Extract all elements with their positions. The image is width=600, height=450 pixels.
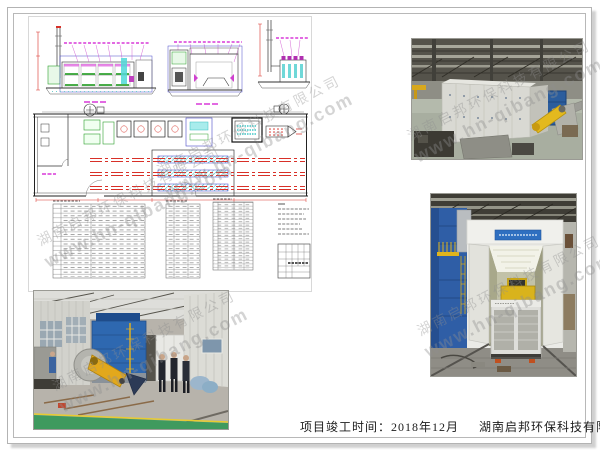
caption-completion-date: 项目竣工时间：2018年12月 bbox=[300, 420, 459, 434]
fan-symbol-right bbox=[274, 104, 289, 114]
parts-table bbox=[213, 199, 253, 270]
photo3-scene bbox=[34, 291, 228, 429]
cad-drawing bbox=[28, 16, 312, 292]
photo2-scene bbox=[431, 194, 576, 376]
elevation-view-2 bbox=[168, 42, 242, 104]
photo-spray-booth bbox=[430, 193, 577, 377]
spec-table-1 bbox=[53, 201, 145, 278]
cad-drawing-svg bbox=[28, 16, 312, 292]
plan-view bbox=[33, 104, 308, 202]
caption: 项目竣工时间：2018年12月湖南启邦环保科技有限公司 bbox=[300, 418, 600, 435]
photo-workshop-machine bbox=[411, 38, 583, 160]
module-row bbox=[117, 121, 182, 137]
photo1-scene bbox=[412, 39, 582, 159]
pump-unit bbox=[266, 126, 302, 137]
title-block bbox=[278, 244, 310, 278]
spec-table-2 bbox=[166, 201, 200, 278]
notes-block bbox=[278, 204, 309, 234]
elevation-view-3 bbox=[258, 20, 310, 88]
photo-workshop-inspection bbox=[33, 290, 229, 430]
caption-company-name: 湖南启邦环保科技有限公司 bbox=[479, 420, 600, 434]
project-sheet: 湖南启邦环保科技有限公司 www.hn-qibang.com 湖南启邦环保科技有… bbox=[0, 0, 600, 450]
elevation-view-1 bbox=[36, 26, 156, 102]
